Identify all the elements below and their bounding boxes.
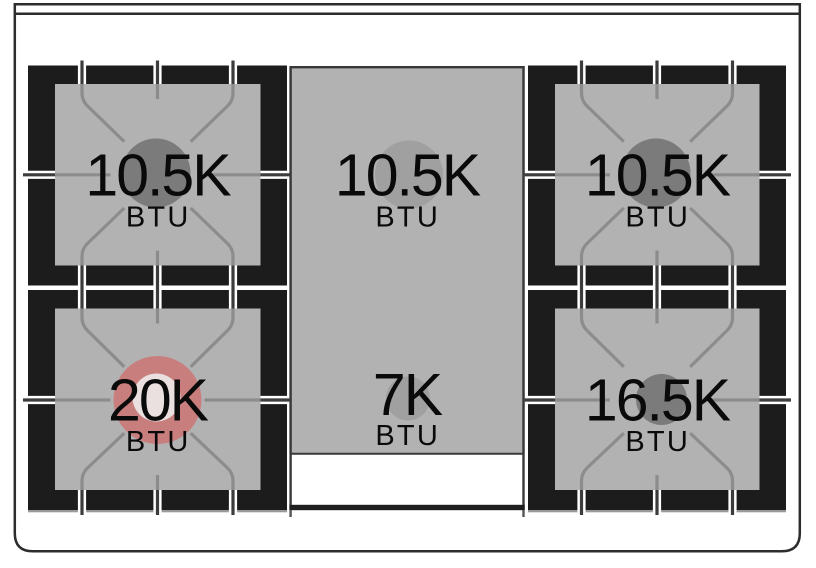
svg-text:16.5K: 16.5K [585, 368, 731, 434]
svg-text:10.5K: 10.5K [585, 143, 731, 209]
svg-text:10.5K: 10.5K [85, 143, 231, 209]
svg-text:BTU: BTU [375, 420, 440, 452]
svg-text:10.5K: 10.5K [335, 143, 481, 209]
svg-text:BTU: BTU [625, 202, 690, 234]
svg-text:BTU: BTU [375, 202, 440, 234]
svg-text:20K: 20K [108, 368, 209, 434]
svg-text:BTU: BTU [625, 426, 690, 458]
svg-text:7K: 7K [373, 362, 443, 428]
svg-text:BTU: BTU [126, 202, 191, 234]
svg-text:BTU: BTU [126, 426, 191, 458]
